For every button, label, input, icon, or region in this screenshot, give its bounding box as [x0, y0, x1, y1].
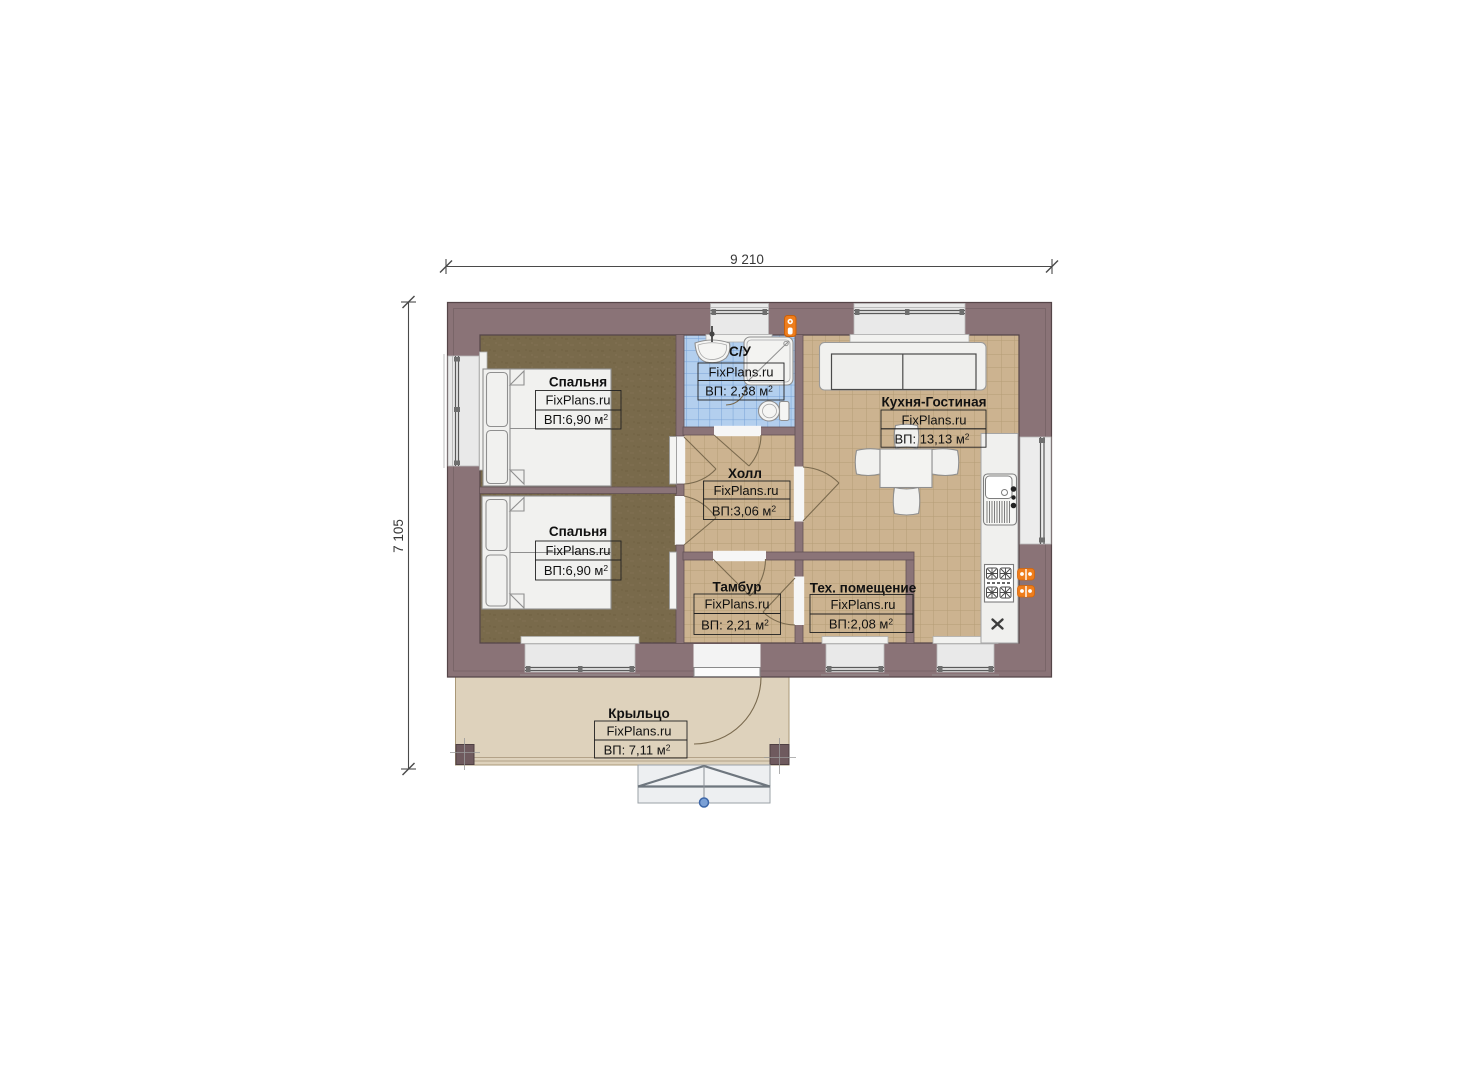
- svg-text:ВП:6,90 м2: ВП:6,90 м2: [544, 563, 608, 578]
- svg-text:ВП: 13,13 м2: ВП: 13,13 м2: [894, 432, 969, 447]
- svg-text:ВП:6,90 м2: ВП:6,90 м2: [544, 412, 608, 427]
- svg-text:Холл: Холл: [728, 466, 762, 481]
- svg-text:FixPlans.ru: FixPlans.ru: [830, 597, 895, 612]
- svg-text:FixPlans.ru: FixPlans.ru: [545, 393, 610, 408]
- svg-text:Кухня-Гостиная: Кухня-Гостиная: [882, 395, 987, 410]
- svg-text:ВП:3,06 м2: ВП:3,06 м2: [712, 504, 776, 519]
- svg-text:Тех. помещение: Тех. помещение: [810, 581, 917, 596]
- svg-text:FixPlans.ru: FixPlans.ru: [545, 543, 610, 558]
- svg-text:Тамбур: Тамбур: [713, 580, 762, 595]
- svg-text:FixPlans.ru: FixPlans.ru: [901, 413, 966, 428]
- svg-text:FixPlans.ru: FixPlans.ru: [606, 724, 671, 739]
- svg-text:ВП: 7,11 м2: ВП: 7,11 м2: [604, 743, 671, 758]
- svg-text:FixPlans.ru: FixPlans.ru: [708, 365, 773, 380]
- svg-text:Крыльцо: Крыльцо: [608, 706, 669, 721]
- svg-text:FixPlans.ru: FixPlans.ru: [713, 483, 778, 498]
- svg-text:9 210: 9 210: [730, 252, 764, 267]
- svg-text:ВП:2,08 м2: ВП:2,08 м2: [829, 617, 893, 632]
- svg-text:Спальня: Спальня: [549, 524, 607, 539]
- svg-text:С/У: С/У: [729, 344, 752, 359]
- svg-text:FixPlans.ru: FixPlans.ru: [704, 597, 769, 612]
- svg-text:Спальня: Спальня: [549, 375, 607, 390]
- svg-text:ВП: 2,21 м2: ВП: 2,21 м2: [701, 618, 769, 633]
- svg-text:ВП: 2,38 м2: ВП: 2,38 м2: [705, 384, 773, 399]
- svg-text:7 105: 7 105: [391, 519, 406, 553]
